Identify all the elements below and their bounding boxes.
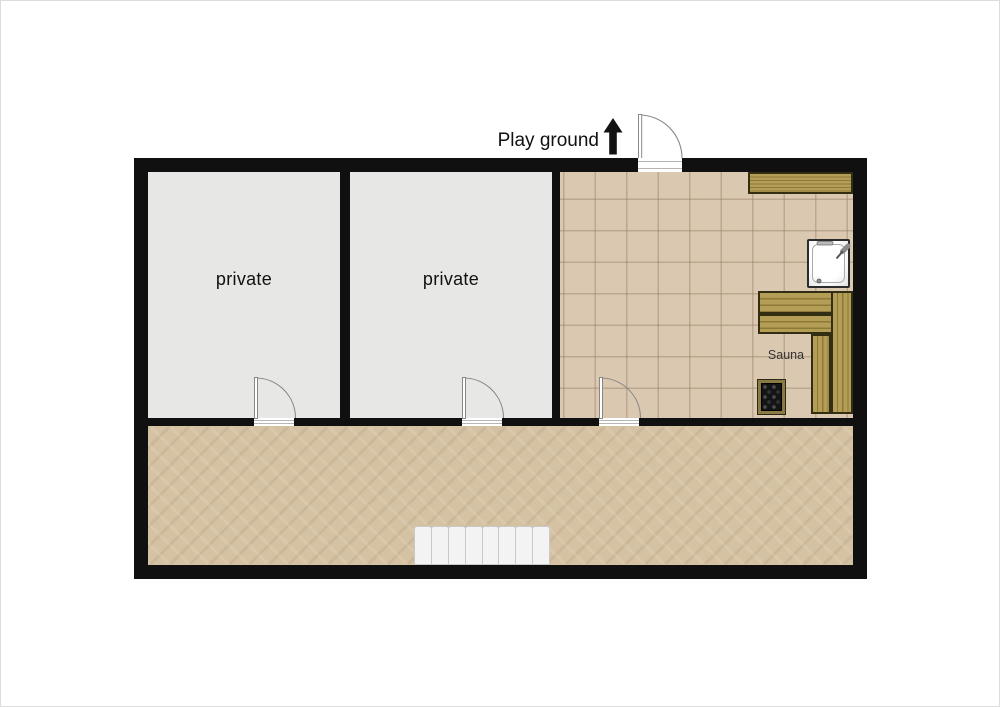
stair-step xyxy=(465,526,483,565)
sauna-bench-upper-icon xyxy=(758,291,833,314)
sauna-label: Sauna xyxy=(760,348,812,362)
door-threshold-private-2 xyxy=(462,418,502,426)
room-private-2-label: private xyxy=(350,269,552,290)
sauna-heater-stones xyxy=(761,383,782,411)
playground-label: Play ground xyxy=(471,130,599,152)
sauna-bench-right-inner-icon xyxy=(811,334,831,414)
room-private-1: private xyxy=(148,172,340,418)
door-swing-private-1-icon xyxy=(254,377,296,419)
door-threshold-shower-room xyxy=(599,418,639,426)
stair-step xyxy=(532,526,550,565)
door-swing-private-2-icon xyxy=(462,377,504,419)
stair-step xyxy=(414,526,432,565)
door-swing-shower-room-icon xyxy=(599,377,641,419)
stair-step xyxy=(431,526,449,565)
sauna-bench-top-icon xyxy=(748,172,853,194)
room-private-2: private xyxy=(350,172,552,418)
entrance-door-threshold xyxy=(638,158,682,172)
entrance-door-swing-icon xyxy=(638,114,683,159)
floorplan-page: Play ground private private xyxy=(0,0,1000,707)
sauna-bench-right-outer-icon xyxy=(831,291,853,414)
door-threshold-private-1 xyxy=(254,418,294,426)
floor-plan: private private Sauna xyxy=(134,158,867,579)
stair-step xyxy=(498,526,516,565)
staircase-icon xyxy=(414,526,549,565)
up-arrow-icon xyxy=(603,118,623,160)
shower-tray-icon xyxy=(807,239,850,288)
sauna-bench-lower-icon xyxy=(758,314,833,334)
shower-head-icon xyxy=(809,241,852,290)
stair-step xyxy=(448,526,466,565)
stair-step xyxy=(482,526,500,565)
sauna-heater-icon xyxy=(757,379,786,415)
room-private-1-label: private xyxy=(148,269,340,290)
stair-step xyxy=(515,526,533,565)
